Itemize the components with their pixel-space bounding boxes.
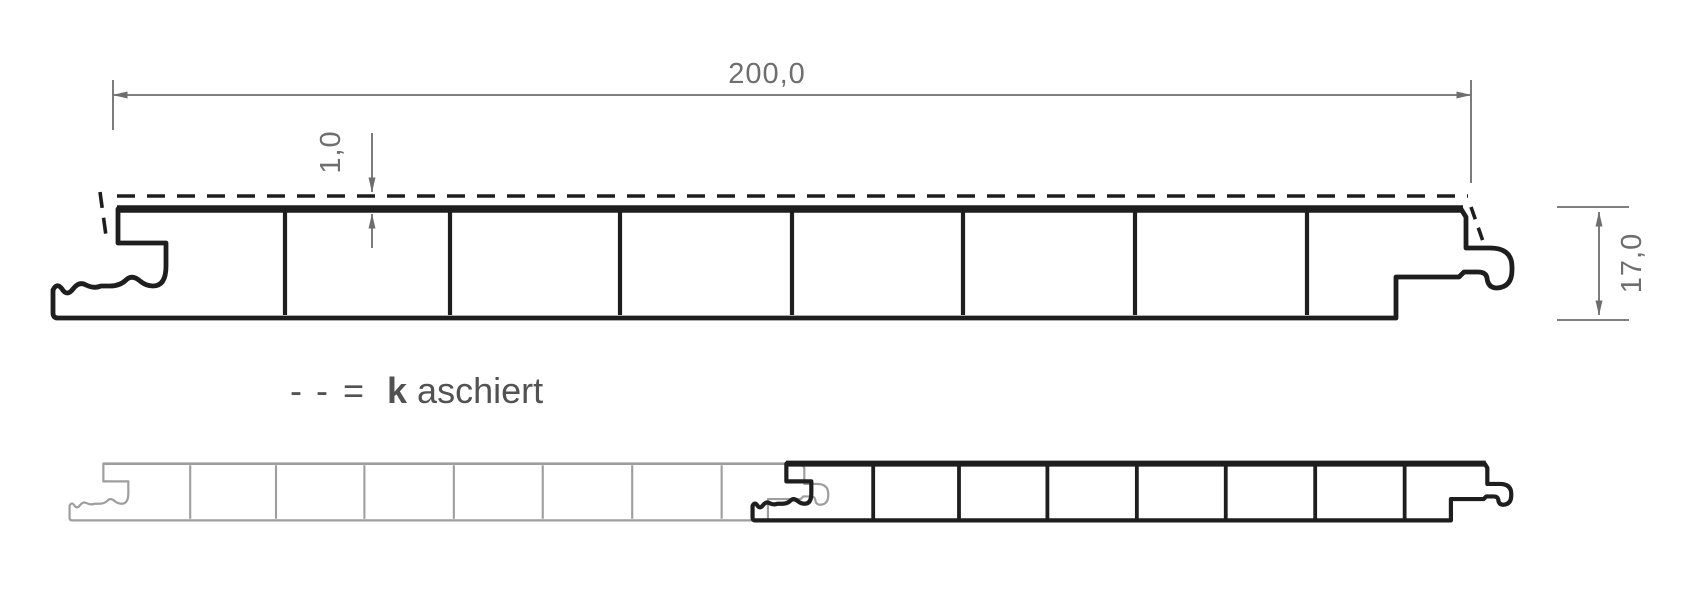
dimension-width-label: 200,0 xyxy=(728,58,806,90)
legend-dash-1: - xyxy=(290,370,302,411)
legend-equals: = xyxy=(343,370,364,411)
main-profile xyxy=(53,209,1512,318)
mating-profile-gray xyxy=(70,464,829,521)
top-profile-drawing xyxy=(53,192,1512,318)
legend-dash-2: - xyxy=(316,370,328,411)
legend-term-rest: aschiert xyxy=(417,370,543,411)
technical-drawing-page: 200,0 1,0 17,0 - - = k aschiert xyxy=(0,0,1694,614)
legend-text: - - = k aschiert xyxy=(290,370,543,411)
profile-cross-section-svg: 200,0 1,0 17,0 - - = k aschiert xyxy=(0,0,1694,614)
legend: - - = k aschiert xyxy=(290,370,543,411)
mating-profile-black xyxy=(753,464,1512,521)
dimensions: 200,0 1,0 17,0 xyxy=(113,58,1648,320)
assembly-drawing xyxy=(70,464,1512,521)
kaschiert-dash-left-end xyxy=(100,192,107,243)
dimension-cover-layer: 1,0 xyxy=(315,130,372,248)
kaschiert-dash-right-end xyxy=(1471,207,1485,247)
dimension-height: 17,0 xyxy=(1557,207,1648,320)
dimension-cover-label: 1,0 xyxy=(315,130,347,173)
dimension-height-label: 17,0 xyxy=(1616,233,1648,293)
legend-term-initial: k xyxy=(387,370,408,411)
